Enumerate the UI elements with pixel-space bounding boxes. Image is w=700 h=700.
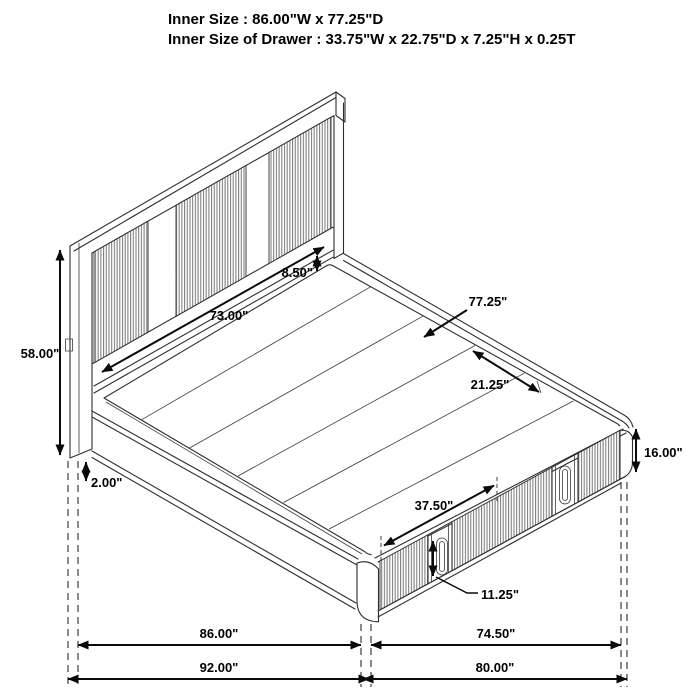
dim-frame-height: 16.00" [644,445,683,460]
header-line-2: Inner Size of Drawer : 33.75"W x 22.75"D… [168,31,575,48]
deck-slat-seam [190,316,423,448]
dim-drawer-front-width: 37.50" [415,498,454,513]
dim-headboard-height: 58.00" [21,346,60,361]
dim-inner-width: 86.00" [200,626,239,641]
dim-drawer-section-span: 74.50" [477,626,516,641]
right-side-rail [344,254,634,429]
dim-floor-clearance: 2.00" [91,475,122,490]
dim-drawer-front-height: 11.25" [481,587,519,602]
deck-slat-seam [284,373,525,502]
dim-platform-depth: 77.25" [469,294,508,309]
bed-dimension-diagram: 58.00" 73.00" 8.50" 77.25" 21.25" 37.50"… [0,0,700,700]
drawer-front-fluted [452,467,552,570]
left-side-rail [92,402,362,609]
dim-headboard-panel-width: 73.00" [210,308,249,323]
deck-slat-seam [238,346,475,477]
dim-footboard-span: 80.00" [476,660,515,675]
header-line-1: Inner Size : 86.00"W x 77.25"D [168,11,383,28]
dim-outer-width: 92.00" [200,660,239,675]
size-header: Inner Size : 86.00"W x 77.25"D Inner Siz… [168,11,575,48]
dim-rail-end-segment: 21.25" [471,377,510,392]
diagram-canvas: 58.00" 73.00" 8.50" 77.25" 21.25" 37.50"… [0,0,700,700]
dim-headboard-platform-gap: 8.50" [282,265,313,280]
